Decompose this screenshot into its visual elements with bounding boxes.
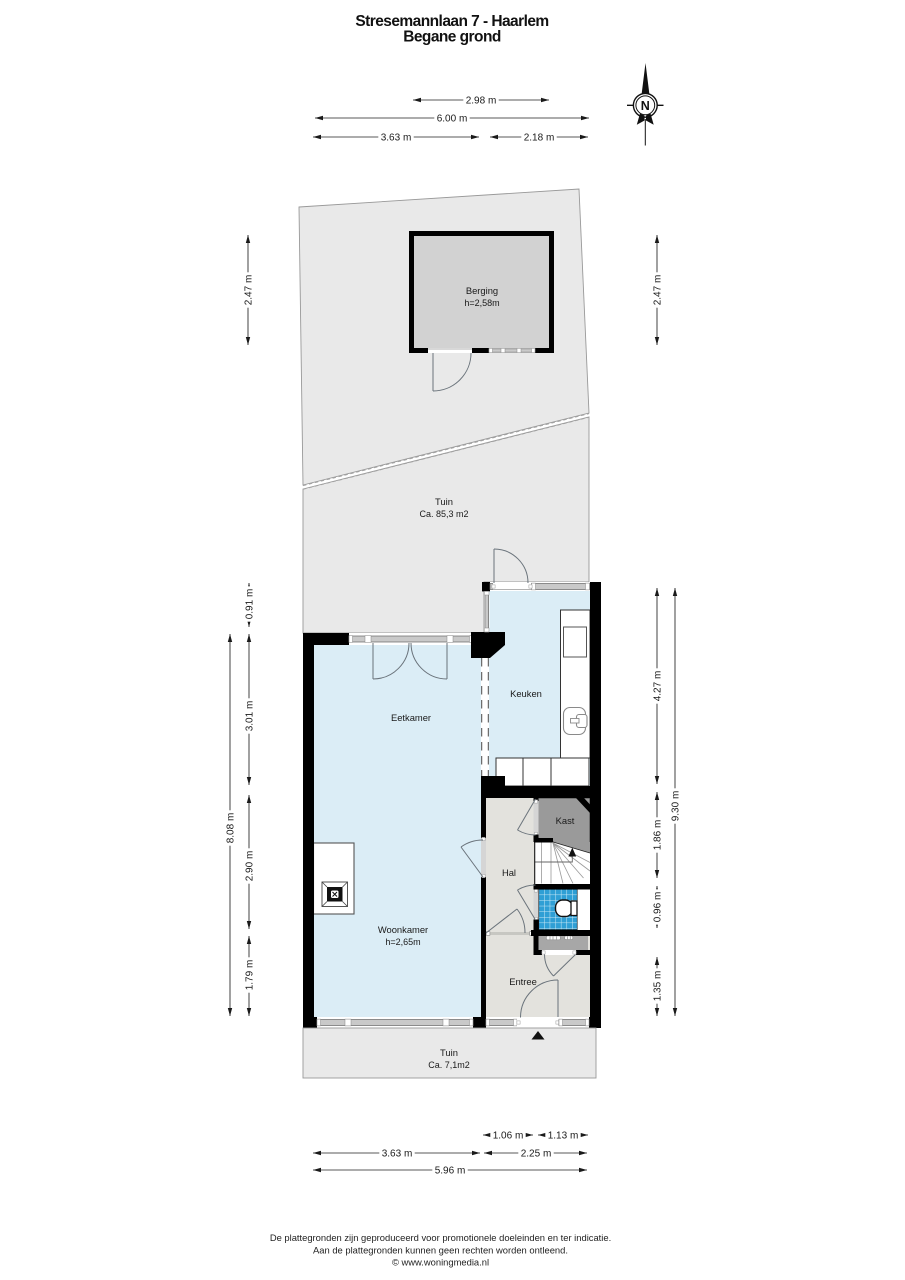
svg-text:Eetkamer: Eetkamer <box>391 712 431 723</box>
svg-text:h=2,58m: h=2,58m <box>464 298 499 308</box>
svg-text:6.00 m: 6.00 m <box>437 113 468 124</box>
svg-text:2.47 m: 2.47 m <box>652 275 663 306</box>
svg-text:N: N <box>641 99 650 113</box>
svg-text:9.30 m: 9.30 m <box>670 791 681 822</box>
svg-text:Stresemannlaan 7 - Haarlem: Stresemannlaan 7 - Haarlem <box>355 13 548 30</box>
svg-text:3.63 m: 3.63 m <box>382 1148 413 1159</box>
svg-text:1.06 m: 1.06 m <box>493 1130 524 1141</box>
svg-text:h=2,65m: h=2,65m <box>385 937 420 947</box>
svg-text:3.63 m: 3.63 m <box>381 132 412 143</box>
svg-text:2.90 m: 2.90 m <box>244 851 255 882</box>
svg-text:Aan de plattegronden kunnen ge: Aan de plattegronden kunnen geen rechten… <box>313 1245 568 1256</box>
svg-text:Ca. 7,1m2: Ca. 7,1m2 <box>428 1060 470 1070</box>
svg-text:Entree: Entree <box>509 976 537 987</box>
svg-text:Ca. 85,3 m2: Ca. 85,3 m2 <box>419 509 468 519</box>
svg-text:0.91 m: 0.91 m <box>244 589 255 620</box>
svg-text:4.27 m: 4.27 m <box>652 671 663 702</box>
svg-text:5.96 m: 5.96 m <box>435 1165 466 1176</box>
svg-text:Kast: Kast <box>556 815 575 826</box>
svg-text:Tuin: Tuin <box>435 496 453 507</box>
svg-text:1.79 m: 1.79 m <box>244 960 255 991</box>
svg-text:Tuin: Tuin <box>440 1047 458 1058</box>
svg-text:2.18 m: 2.18 m <box>524 132 555 143</box>
svg-text:Keuken: Keuken <box>510 688 542 699</box>
svg-text:3.01 m: 3.01 m <box>244 701 255 732</box>
svg-text:© www.woningmedia.nl: © www.woningmedia.nl <box>392 1256 489 1267</box>
svg-text:1.86 m: 1.86 m <box>652 820 663 851</box>
svg-text:Hal: Hal <box>502 867 516 878</box>
svg-text:1.35 m: 1.35 m <box>652 971 663 1002</box>
svg-text:Berging: Berging <box>466 285 498 296</box>
svg-text:2.25 m: 2.25 m <box>521 1148 552 1159</box>
svg-text:Woonkamer: Woonkamer <box>378 924 428 935</box>
svg-text:2.47 m: 2.47 m <box>243 275 254 306</box>
svg-text:Begane grond: Begane grond <box>403 29 501 46</box>
svg-text:1.13 m: 1.13 m <box>548 1130 579 1141</box>
svg-text:De plattegronden zijn geproduc: De plattegronden zijn geproduceerd voor … <box>270 1232 611 1243</box>
svg-text:0.96 m: 0.96 m <box>652 892 663 923</box>
svg-text:2.98 m: 2.98 m <box>466 95 497 106</box>
svg-text:8.08 m: 8.08 m <box>225 813 236 844</box>
